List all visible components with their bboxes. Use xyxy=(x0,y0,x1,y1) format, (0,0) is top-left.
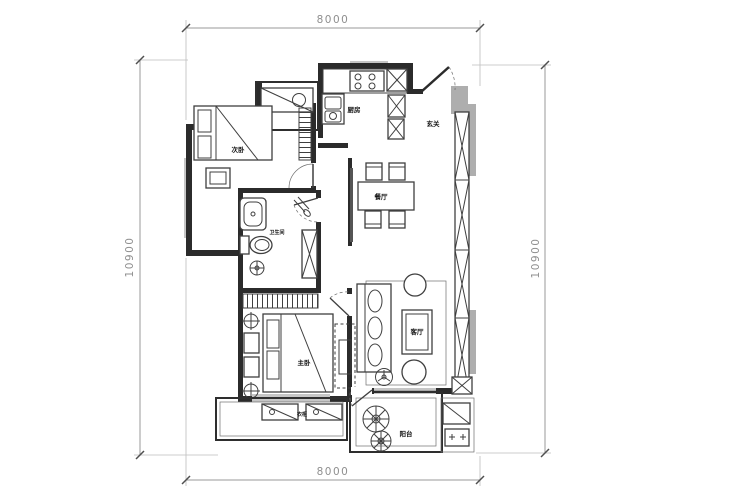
floor-plan-canvas: 8000 8000 10900 10900 xyxy=(0,0,738,500)
sliding-door-leaf xyxy=(350,168,353,242)
room-label-living: 客厅 xyxy=(410,327,425,336)
entry-door-leaf xyxy=(421,67,449,92)
wardrobe-comb xyxy=(299,108,311,160)
storage-balcony: 衣柜 xyxy=(216,398,347,440)
master-bedroom: 主卧 xyxy=(242,292,355,400)
south-balcony: 阳台 xyxy=(350,387,442,452)
right-braced-wall xyxy=(455,112,469,392)
master-door-leaf xyxy=(330,298,349,316)
dim-bottom-label: 8000 xyxy=(317,466,350,478)
bed-icon xyxy=(263,314,333,392)
room-label-kitchen: 厨房 xyxy=(348,105,362,114)
room-label-balcony: 阳台 xyxy=(400,429,414,438)
dimension-right: 10900 xyxy=(472,61,551,457)
chair-icon xyxy=(389,163,405,180)
sofa-icon xyxy=(357,284,391,372)
closet-comb xyxy=(243,294,318,308)
chair-icon xyxy=(389,211,405,228)
plant-icon xyxy=(371,431,391,451)
door-arc xyxy=(289,164,313,188)
dim-right-label: 10900 xyxy=(530,238,542,279)
plant-icon xyxy=(363,406,389,432)
kitchen: 厨房 xyxy=(322,69,407,139)
room-label-dining: 餐厅 xyxy=(374,192,389,201)
bathroom: 卫生间 xyxy=(240,197,318,278)
master-door-arc xyxy=(330,292,349,298)
bath-door-leaf xyxy=(294,198,318,205)
living-room: 客厅 xyxy=(357,274,446,386)
ac-unit-icon xyxy=(445,429,469,446)
foyer: 玄关 xyxy=(421,67,455,128)
room-label-bathroom: 卫生间 xyxy=(269,229,284,236)
room-label-master: 主卧 xyxy=(298,358,312,367)
fan-icon xyxy=(376,369,393,386)
toilet-icon xyxy=(240,236,249,254)
secondary-bedroom: 次卧 xyxy=(194,106,313,188)
dim-left-label: 10900 xyxy=(124,237,136,278)
nightstand-icon xyxy=(244,357,259,377)
label-wardrobe: 衣柜 xyxy=(297,411,307,418)
bath-door-arc xyxy=(294,205,318,222)
room-label-secondary-bedroom: 次卧 xyxy=(232,145,246,154)
nightstand-icon xyxy=(244,333,259,353)
ceiling-lamp-icon xyxy=(242,312,260,330)
side-table-icon xyxy=(404,274,426,296)
side-table-icon xyxy=(402,360,426,384)
floor-plan-drawing: 8000 8000 10900 10900 xyxy=(0,0,738,500)
chair-icon xyxy=(365,211,381,228)
dim-top-label: 8000 xyxy=(317,14,350,26)
dining-room: 餐厅 xyxy=(350,163,414,242)
stove-icon xyxy=(350,71,384,91)
room-label-foyer: 玄关 xyxy=(427,119,441,128)
chair-icon xyxy=(366,163,382,180)
